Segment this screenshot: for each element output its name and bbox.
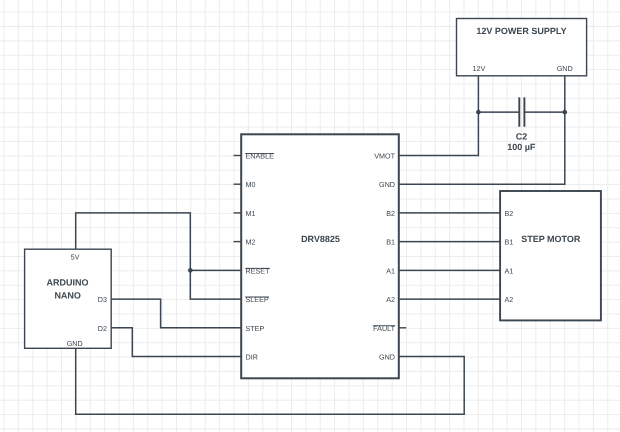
svg-text:DIR: DIR bbox=[246, 353, 258, 362]
svg-text:ENABLE: ENABLE bbox=[246, 152, 275, 161]
svg-text:GND: GND bbox=[557, 64, 573, 73]
svg-text:M2: M2 bbox=[246, 238, 256, 247]
svg-text:B1: B1 bbox=[505, 238, 514, 247]
svg-text:GND: GND bbox=[67, 339, 83, 348]
svg-text:RESET: RESET bbox=[246, 266, 271, 275]
svg-text:D3: D3 bbox=[98, 295, 107, 304]
svg-text:STEP MOTOR: STEP MOTOR bbox=[521, 234, 581, 244]
svg-text:B2: B2 bbox=[386, 209, 395, 218]
svg-text:VMOT: VMOT bbox=[374, 152, 395, 161]
svg-text:GND: GND bbox=[379, 353, 395, 362]
svg-text:ARDUINO: ARDUINO bbox=[47, 277, 89, 287]
svg-text:100 µF: 100 µF bbox=[507, 142, 536, 152]
svg-text:STEP: STEP bbox=[246, 324, 265, 333]
svg-text:C2: C2 bbox=[516, 132, 528, 142]
svg-text:M0: M0 bbox=[246, 180, 256, 189]
svg-text:SLEEP: SLEEP bbox=[246, 295, 269, 304]
svg-text:12V: 12V bbox=[473, 64, 486, 73]
svg-text:DRV8825: DRV8825 bbox=[301, 234, 340, 244]
svg-text:GND: GND bbox=[379, 180, 395, 189]
svg-text:A1: A1 bbox=[386, 266, 395, 275]
svg-text:B2: B2 bbox=[505, 209, 514, 218]
svg-text:5V: 5V bbox=[71, 253, 80, 262]
svg-text:NANO: NANO bbox=[54, 291, 81, 301]
svg-text:A1: A1 bbox=[505, 266, 514, 275]
svg-text:A2: A2 bbox=[386, 295, 395, 304]
svg-text:D2: D2 bbox=[98, 324, 107, 333]
svg-text:M1: M1 bbox=[246, 209, 256, 218]
svg-text:FAULT: FAULT bbox=[373, 324, 395, 333]
svg-text:B1: B1 bbox=[386, 238, 395, 247]
svg-text:12V POWER SUPPLY: 12V POWER SUPPLY bbox=[476, 26, 566, 36]
svg-text:A2: A2 bbox=[505, 295, 514, 304]
